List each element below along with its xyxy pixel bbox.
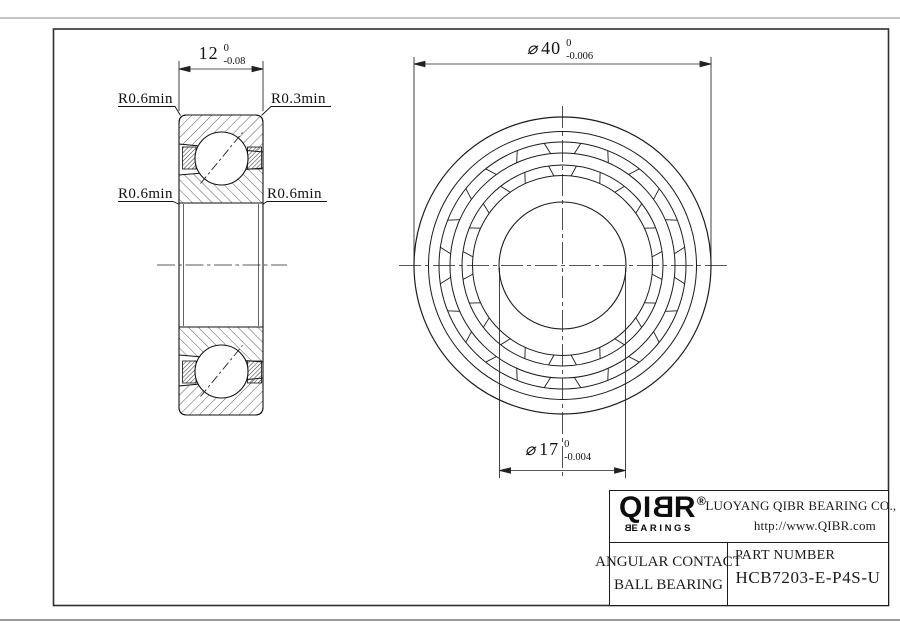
title-block-header-row: QIBR® BEARINGS LUOYANG QIBR BEARING CO.,… <box>610 491 888 543</box>
radius-label-top-right: R0.3min <box>271 91 326 108</box>
company-info: LUOYANG QIBR BEARING CO., LTD http://www… <box>705 491 900 542</box>
dimension-bore-diameter: ⌀ 17 0 -0.004 <box>496 440 620 466</box>
dimension-width: 12 0 -0.08 <box>172 44 272 70</box>
title-block: QIBR® BEARINGS LUOYANG QIBR BEARING CO.,… <box>609 490 889 606</box>
brand-logo: QIBR® BEARINGS <box>610 491 705 542</box>
part-number-label: PART NUMBER <box>735 548 888 564</box>
registered-mark: ® <box>697 494 706 508</box>
dimension-tolerance: 0 -0.004 <box>564 438 591 464</box>
diameter-symbol: ⌀ <box>527 40 537 57</box>
ball-top <box>195 132 248 185</box>
cage-section <box>183 147 197 169</box>
dimension-value: 12 <box>199 44 219 62</box>
company-website: http://www.QIBR.com <box>705 516 900 536</box>
cage-section <box>248 147 262 169</box>
dimension-value: 17 <box>539 440 559 458</box>
part-number-cell: PART NUMBER HCB7203-E-P4S-U <box>728 543 888 605</box>
brand-logo-subtext: BEARINGS <box>622 523 705 534</box>
front-view <box>399 106 728 480</box>
ball-bottom <box>195 345 248 398</box>
radius-label-mid-right: R0.6min <box>267 186 322 203</box>
radius-label-top-left: R0.6min <box>118 91 173 108</box>
diameter-symbol: ⌀ <box>525 441 535 458</box>
title-block-detail-row: ANGULAR CONTACT BALL BEARING PART NUMBER… <box>610 543 888 605</box>
dimension-outer-diameter: ⌀ 40 0 -0.006 <box>498 39 622 65</box>
dimension-value: 40 <box>541 39 561 57</box>
cage-section <box>183 361 197 383</box>
dimension-tolerance: 0 -0.006 <box>566 37 593 63</box>
dimension-tolerance: 0 -0.08 <box>224 42 246 68</box>
company-name: LUOYANG QIBR BEARING CO., LTD <box>705 496 900 516</box>
product-type: ANGULAR CONTACT BALL BEARING <box>610 543 728 605</box>
section-view <box>157 115 287 415</box>
part-number-value: HCB7203-E-P4S-U <box>728 568 888 588</box>
cage-section <box>248 361 262 383</box>
brand-logo-text: QIBR® <box>619 492 705 524</box>
radius-label-mid-left: R0.6min <box>118 186 173 203</box>
product-type-line2: BALL BEARING <box>614 574 723 597</box>
product-type-line1: ANGULAR CONTACT <box>595 551 742 574</box>
drawing-page: 12 0 -0.08 ⌀ 40 0 -0.006 ⌀ 17 0 -0.004 R… <box>0 0 900 636</box>
